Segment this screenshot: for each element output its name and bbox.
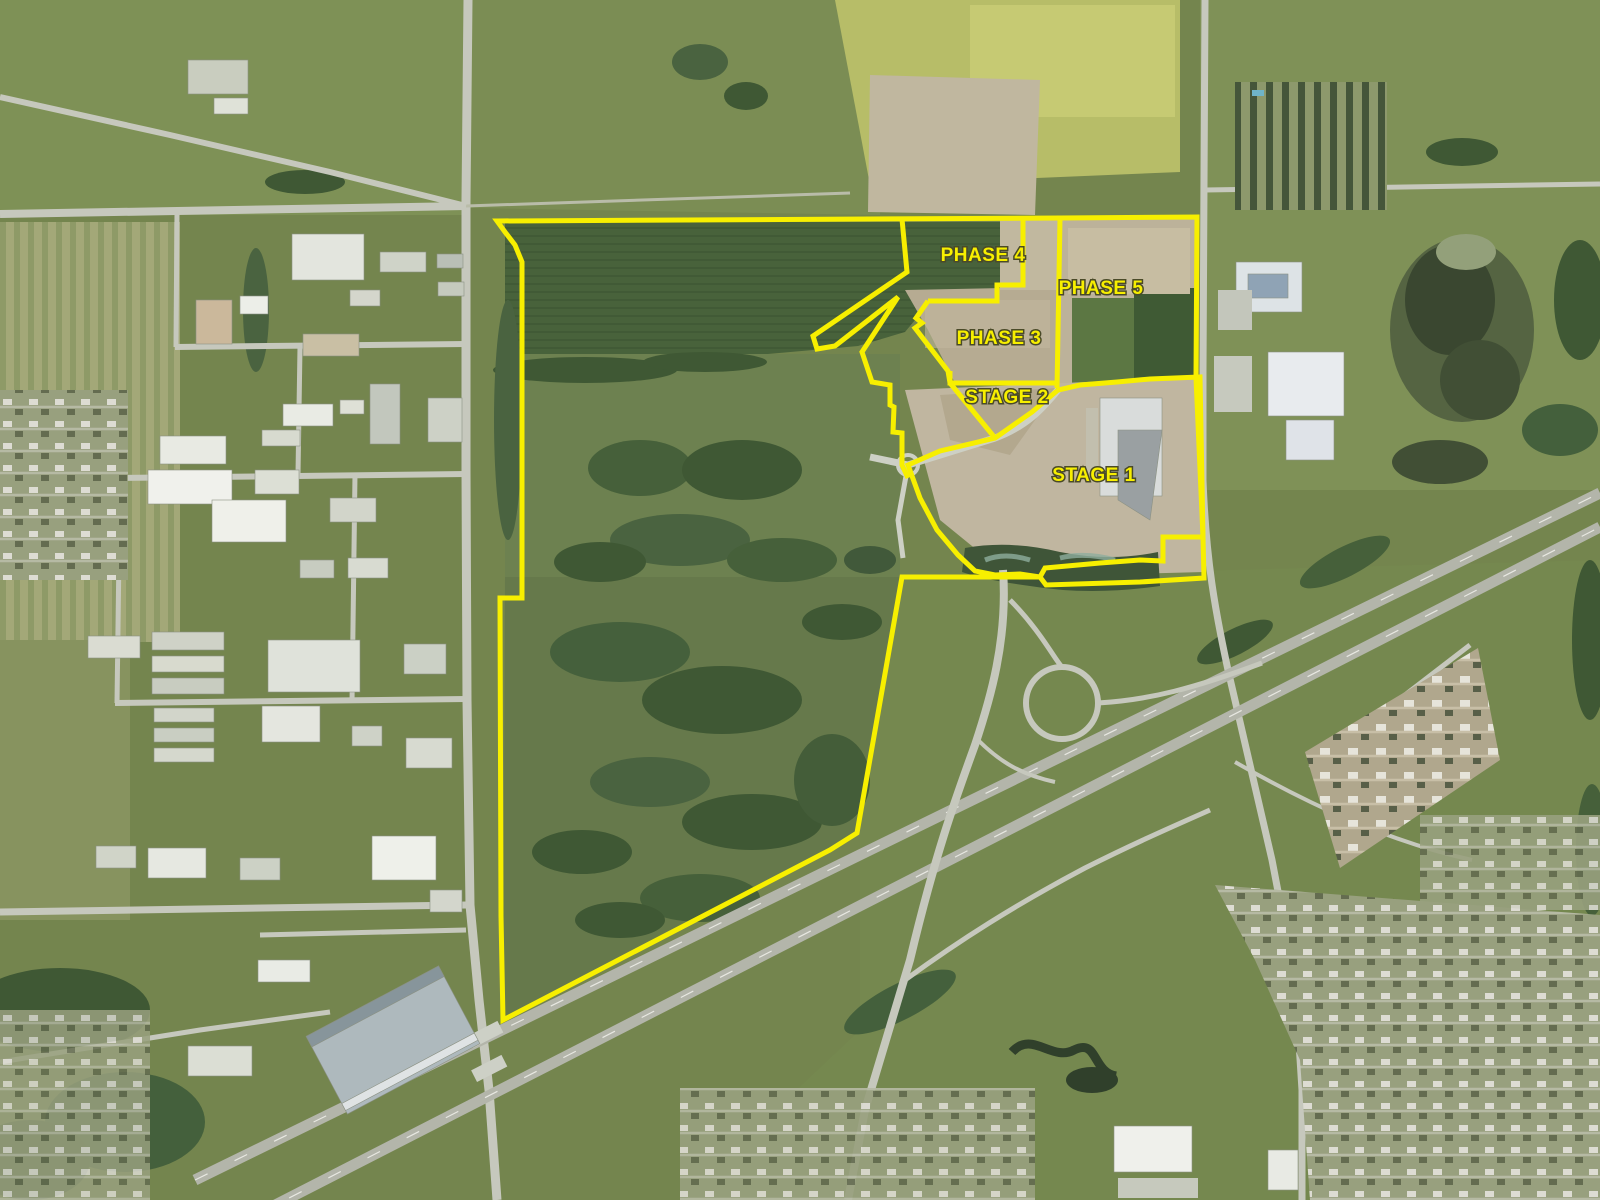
label-phase-5: PHASE 5: [1059, 278, 1144, 299]
label-stage-1: STAGE 1: [1052, 465, 1135, 486]
label-stage-2: STAGE 2: [965, 387, 1048, 408]
label-phase-3: PHASE 3: [957, 328, 1042, 349]
residential-south: [680, 1088, 1035, 1200]
label-phase-4: PHASE 4: [941, 245, 1026, 266]
tree-farm: [1235, 82, 1387, 210]
satellite-map: PHASE 4PHASE 5PHASE 3STAGE 2STAGE 1: [0, 0, 1600, 1200]
aerial-imagery: PHASE 4PHASE 5PHASE 3STAGE 2STAGE 1: [0, 0, 1600, 1200]
phase-5-west-boundary: [1057, 219, 1060, 388]
residential-west: [0, 390, 128, 580]
